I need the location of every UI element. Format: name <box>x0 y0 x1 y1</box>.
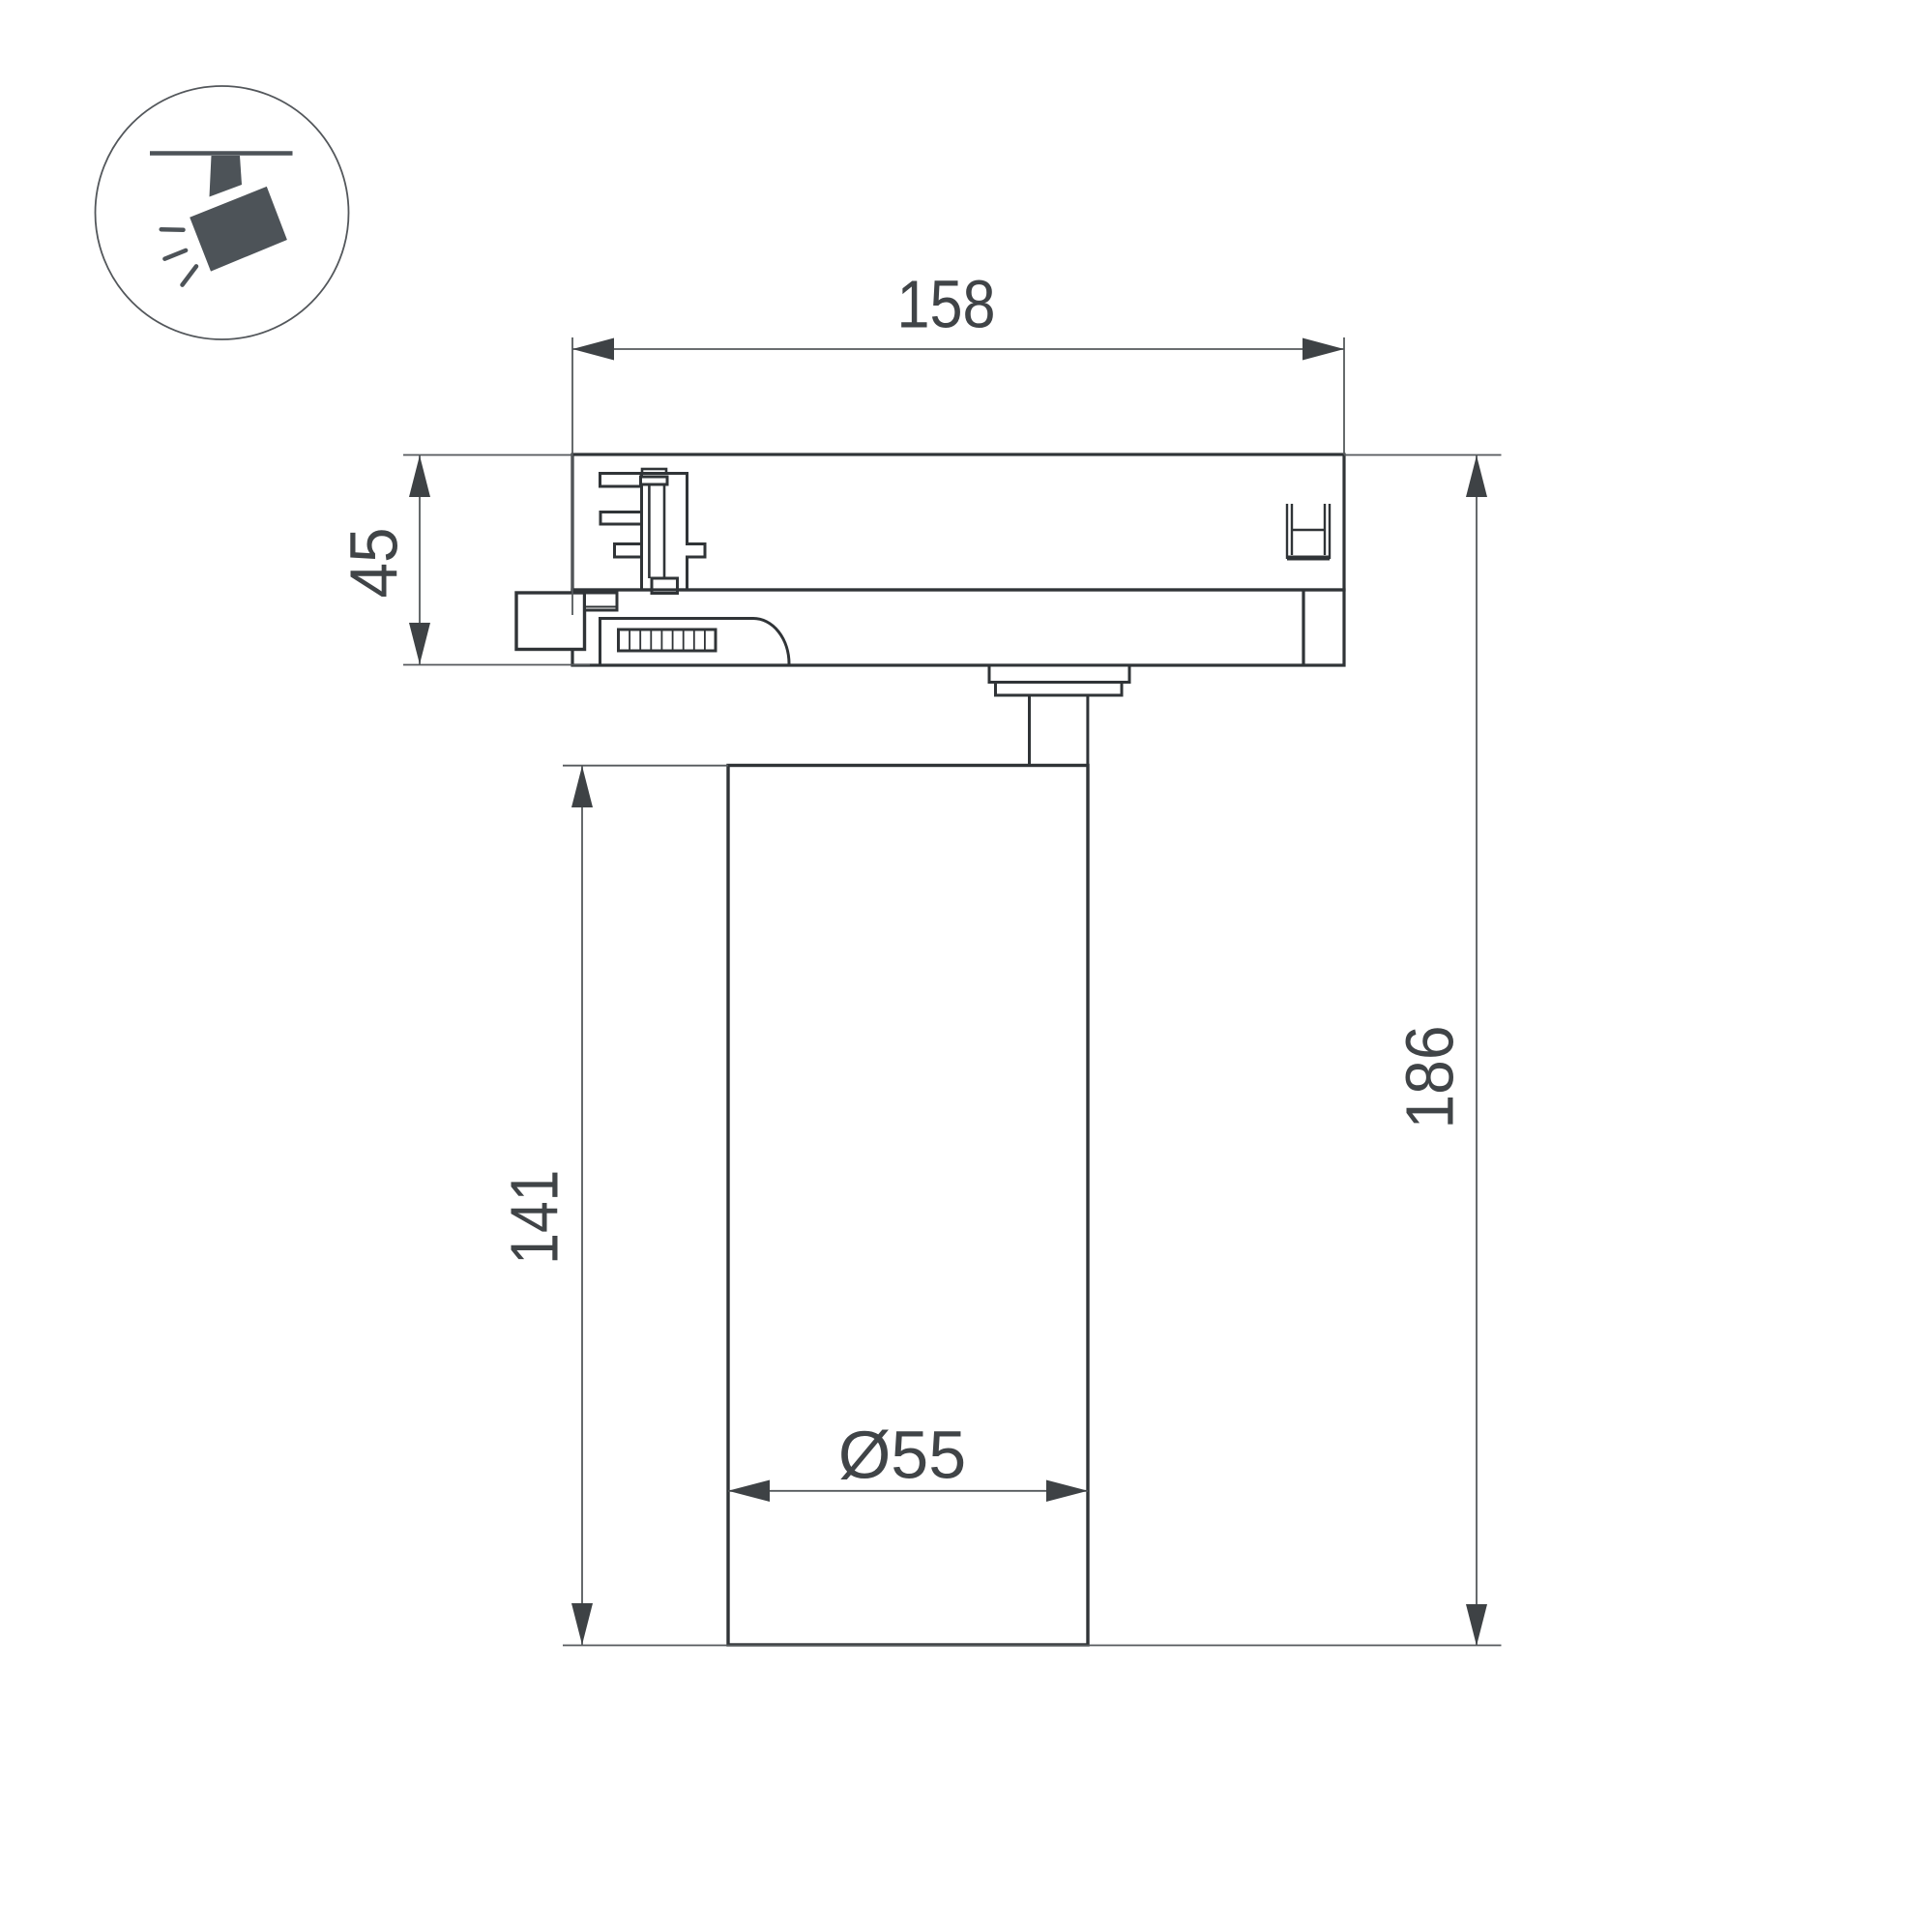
svg-text:158: 158 <box>897 267 996 342</box>
svg-text:45: 45 <box>337 528 412 599</box>
svg-text:Ø55: Ø55 <box>838 1418 966 1493</box>
svg-text:141: 141 <box>497 1170 572 1265</box>
svg-text:186: 186 <box>1392 1026 1468 1129</box>
